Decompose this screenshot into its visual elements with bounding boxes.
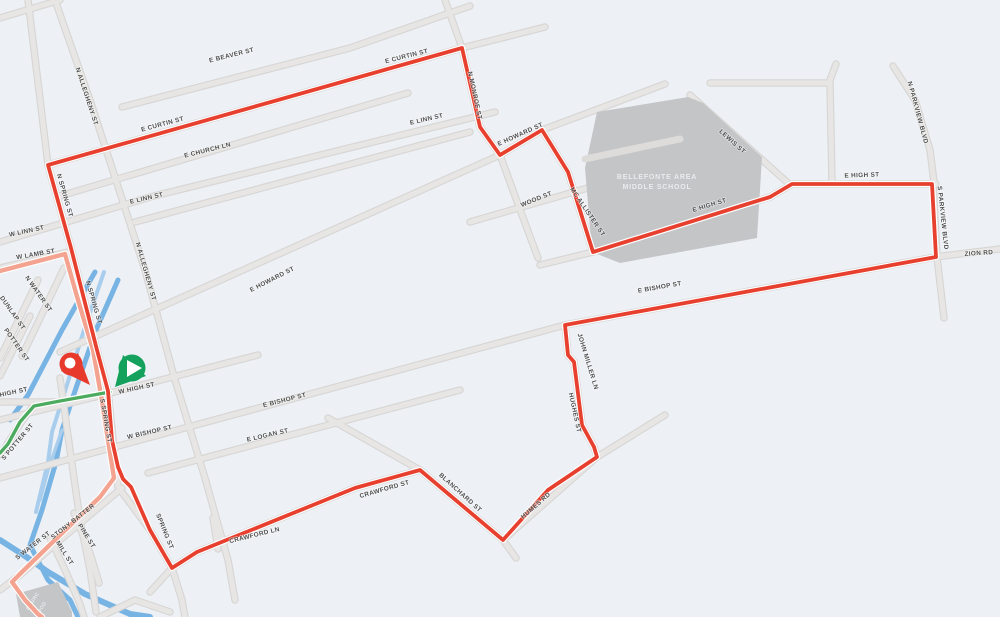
- school-label-line1: BELLEFONTE AREA: [617, 174, 697, 181]
- street-path: [830, 64, 836, 80]
- route-main-line: [48, 48, 936, 568]
- street-label: E BISHOP ST: [637, 280, 682, 295]
- street-label: E BEAVER ST: [208, 47, 254, 65]
- map-viewport[interactable]: CHURC GOOD BELLEFONTE AREA MIDDLE SCHOOL…: [0, 0, 1000, 617]
- street-labels: E BEAVER STE CURTIN STE CURTIN STE CHURC…: [0, 47, 993, 567]
- street-label: N ALLEGHENY ST: [74, 67, 99, 127]
- street-label: E HOWARD ST: [249, 265, 296, 293]
- school-label-line2: MIDDLE SCHOOL: [622, 184, 691, 191]
- street-path: [148, 390, 460, 473]
- street-label: ZION RD: [964, 249, 993, 258]
- street-label: E LINN ST: [129, 191, 164, 205]
- route-main: [48, 48, 936, 568]
- map-canvas[interactable]: CHURC GOOD BELLEFONTE AREA MIDDLE SCHOOL…: [0, 0, 1000, 617]
- street-label: N ALLEGHENY ST: [134, 242, 157, 302]
- street-label: HUMES RD: [520, 491, 552, 521]
- end-pin-hole: [65, 358, 76, 369]
- street-label: N PARKVIEW BLVD: [906, 81, 929, 145]
- street-path: [135, 132, 470, 222]
- street-label: E HIGH ST: [844, 171, 879, 179]
